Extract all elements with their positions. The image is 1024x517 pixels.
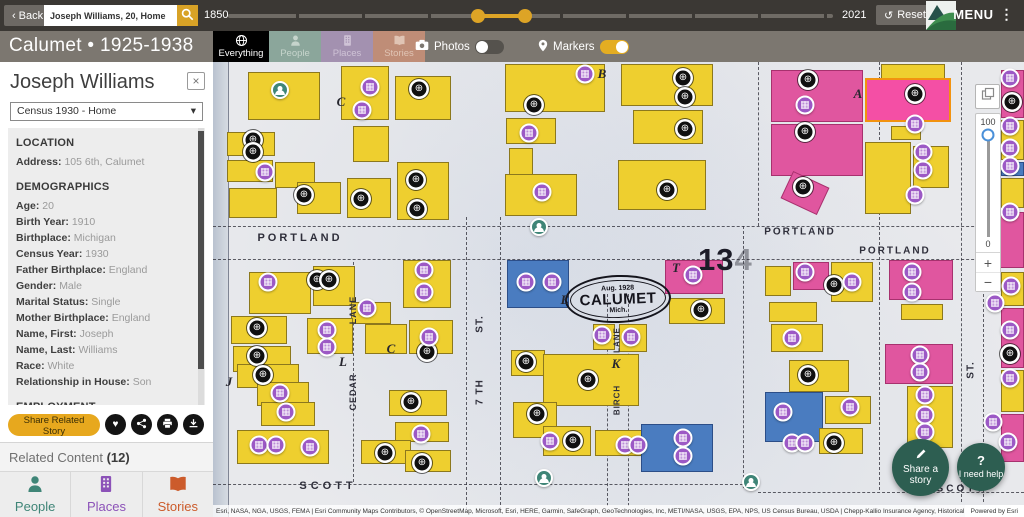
- map-marker-record[interactable]: ⊕: [401, 392, 421, 412]
- sidebar-scrollbar[interactable]: [198, 128, 204, 405]
- globe-marker-icon: ⊕: [300, 190, 308, 200]
- map-marker-place[interactable]: ▦: [361, 78, 380, 97]
- related-tab-label: Stories: [158, 499, 198, 514]
- tab-label: Everything: [219, 48, 264, 59]
- building-marker-icon: ▦: [416, 429, 425, 439]
- map-marker-record[interactable]: ⊕: [409, 79, 429, 99]
- globe-marker-icon: ⊕: [1006, 349, 1014, 359]
- year-slider-handle-right[interactable]: [518, 9, 532, 23]
- map-marker-record[interactable]: ⊕: [675, 87, 695, 107]
- street-line: [213, 484, 743, 485]
- field-value: Joseph: [80, 328, 114, 340]
- map-marker-place[interactable]: ▦: [999, 433, 1018, 452]
- page-title: Calumet • 1925-1938: [9, 35, 194, 57]
- building-marker-icon: ▦: [678, 433, 687, 443]
- map-marker-place[interactable]: ▦: [1001, 321, 1020, 340]
- map-building: [865, 142, 911, 214]
- map-marker-record[interactable]: ⊕: [407, 199, 427, 219]
- menu-button[interactable]: MENU ⋮: [953, 6, 1014, 23]
- globe-marker-icon: ⊕: [407, 397, 415, 407]
- basemap-button[interactable]: [975, 84, 1000, 109]
- building-marker-icon: ▦: [1005, 73, 1014, 83]
- globe-marker-icon: ⊕: [418, 458, 426, 468]
- related-tab-label: People: [15, 499, 55, 514]
- globe-marker-icon: ⊕: [569, 436, 577, 446]
- map-marker-record[interactable]: ⊕: [824, 275, 844, 295]
- field-value: 1930: [85, 248, 108, 260]
- globe-marker-icon: ⊕: [423, 347, 431, 357]
- app-logo[interactable]: [926, 1, 956, 30]
- map-marker-place[interactable]: ▦: [533, 183, 552, 202]
- photos-switch[interactable]: [475, 40, 504, 54]
- building-marker-icon: ▦: [1003, 437, 1012, 447]
- map-marker-record[interactable]: ⊕: [673, 68, 693, 88]
- heart-icon: ♥: [113, 419, 119, 430]
- field-row: Race: White: [16, 360, 191, 376]
- building-marker-icon: ▦: [419, 287, 428, 297]
- map-marker-place[interactable]: ▦: [1001, 203, 1020, 222]
- map-marker-person[interactable]: [742, 473, 760, 491]
- building-marker-icon: ▦: [322, 342, 331, 352]
- book-icon: [168, 474, 188, 497]
- map-marker-record[interactable]: ⊕: [691, 300, 711, 320]
- detail-sidebar: Joseph Williams × Census 1930 - Home ▾ L…: [0, 62, 213, 517]
- globe-marker-icon: ⊕: [584, 375, 592, 385]
- zoom-in-button[interactable]: +: [976, 253, 1000, 272]
- field-label: Gender:: [16, 280, 59, 292]
- field-row: Birth Year: 1910: [16, 216, 191, 232]
- map-marker-place[interactable]: ▦: [543, 273, 562, 292]
- field-row: Gender: Male: [16, 280, 191, 296]
- map-marker-place[interactable]: ▦: [906, 186, 925, 205]
- globe-marker-icon: ⊕: [381, 448, 389, 458]
- globe-marker-icon: ⊕: [804, 370, 812, 380]
- person-icon: [289, 34, 302, 47]
- building-marker-icon: ▦: [915, 350, 924, 360]
- map-marker-place[interactable]: ▦: [520, 124, 539, 143]
- globe-marker-icon: ⊕: [911, 89, 919, 99]
- map-marker-record[interactable]: ⊕: [793, 177, 813, 197]
- map-building: [901, 304, 943, 320]
- person-icon: [25, 474, 45, 497]
- share-a-story-button[interactable]: Share a story: [892, 439, 949, 496]
- street-label: SCOTT: [299, 480, 356, 492]
- search-input[interactable]: [44, 5, 177, 26]
- globe-marker-icon: ⊕: [801, 127, 809, 137]
- building-marker-icon: ▦: [580, 69, 589, 79]
- pencil-icon: [915, 448, 927, 464]
- opacity-slider[interactable]: [987, 133, 990, 237]
- building-marker-icon: ▦: [778, 407, 787, 417]
- map-marker-record[interactable]: ⊕: [375, 443, 395, 463]
- stamp-state: Mich.: [609, 306, 627, 314]
- map-marker-place[interactable]: ▦: [684, 266, 703, 285]
- building-marker-icon: ▦: [537, 187, 546, 197]
- photos-toggle[interactable]: Photos: [415, 39, 504, 54]
- map-marker-place[interactable]: ▦: [629, 436, 648, 455]
- building-marker-icon: ▦: [918, 147, 927, 157]
- field-value: Single: [91, 296, 120, 308]
- map-marker-person[interactable]: [535, 469, 553, 487]
- markers-toggle[interactable]: Markers: [538, 39, 629, 55]
- map-marker-place[interactable]: ▦: [984, 413, 1003, 432]
- globe-marker-icon: ⊕: [415, 84, 423, 94]
- globe-marker-icon: ⊕: [804, 75, 812, 85]
- top-bar: ‹ Back 1850 2021 ↺ Reset: [0, 0, 1024, 31]
- street-line: [961, 62, 962, 502]
- building-marker-icon: ▦: [1006, 281, 1015, 291]
- field-value: England: [112, 312, 151, 324]
- map-marker-record[interactable]: ⊕: [243, 142, 263, 162]
- globe-marker-icon: ⊕: [679, 73, 687, 83]
- map-marker-place[interactable]: ▦: [415, 261, 434, 280]
- field-row: Name, Last: Williams: [16, 344, 191, 360]
- map-marker-place[interactable]: ▦: [353, 101, 372, 120]
- map-marker-place[interactable]: ▦: [256, 163, 275, 182]
- map-canvas[interactable]: Aug. 1928 CALUMET Mich. 134 100 0 +: [213, 62, 1024, 517]
- action-bar: Share Related Story ♥: [0, 405, 213, 442]
- field-row: Relationship in House: Son: [16, 376, 191, 392]
- globe-marker-icon: ⊕: [681, 92, 689, 102]
- map-marker-place[interactable]: ▦: [903, 283, 922, 302]
- building-marker-icon: ▦: [847, 277, 856, 287]
- map-marker-place[interactable]: ▦: [1002, 277, 1021, 296]
- close-icon: ×: [192, 74, 199, 88]
- calumet-stamp: Aug. 1928 CALUMET Mich.: [564, 273, 672, 325]
- street-label: CEDAR: [348, 373, 358, 410]
- i-need-help-button[interactable]: ? I need help: [957, 443, 1005, 491]
- globe-marker-icon: ⊕: [530, 100, 538, 110]
- close-button[interactable]: ×: [187, 72, 205, 90]
- building-marker-icon: ▦: [322, 325, 331, 335]
- field-label: Race:: [16, 360, 48, 372]
- map-marker-record[interactable]: ⊕: [294, 185, 314, 205]
- related-tab-places[interactable]: Places: [70, 472, 141, 517]
- building-marker-icon: ▦: [545, 436, 554, 446]
- building-marker-icon: ▦: [419, 265, 428, 275]
- field-row: Age: 20: [16, 200, 191, 216]
- print-button[interactable]: [157, 414, 178, 435]
- camera-icon: [415, 39, 429, 54]
- tab-people[interactable]: People: [269, 31, 321, 62]
- building-marker-icon: ▦: [597, 330, 606, 340]
- map-marker-record[interactable]: ⊕: [795, 122, 815, 142]
- street-label: LANE: [348, 296, 358, 325]
- map-marker-record[interactable]: ⊕: [524, 95, 544, 115]
- field-value: 20: [42, 200, 54, 212]
- map-marker-place[interactable]: ▦: [914, 143, 933, 162]
- related-content-tabs: People Places Stories: [0, 471, 213, 517]
- reset-label: Reset: [897, 9, 926, 21]
- map-marker-place[interactable]: ▦: [1001, 69, 1020, 88]
- book-icon: [393, 34, 406, 47]
- map-marker-place[interactable]: ▦: [277, 403, 296, 422]
- tab-everything[interactable]: Everything: [213, 31, 269, 62]
- map-marker-place[interactable]: ▦: [415, 283, 434, 302]
- map-marker-place[interactable]: ▦: [774, 403, 793, 422]
- globe-icon: [235, 34, 248, 47]
- map-building: [771, 124, 863, 176]
- globe-marker-icon: ⊕: [830, 438, 838, 448]
- download-icon: [188, 418, 199, 432]
- field-label: Age:: [16, 200, 42, 212]
- building-marker-icon: ▦: [907, 267, 916, 277]
- map-marker-record[interactable]: ⊕: [1002, 92, 1022, 112]
- map-pin-icon: [538, 39, 548, 55]
- field-value: 1910: [72, 216, 95, 228]
- map-marker-record[interactable]: ⊕: [527, 404, 547, 424]
- street-label: 7 TH: [475, 379, 486, 405]
- building-marker-icon: ▦: [263, 277, 272, 287]
- timeline-year-end: 2021: [842, 9, 866, 21]
- block-letter: J: [226, 374, 233, 390]
- field-row: Mother Birthplace: England: [16, 312, 191, 328]
- map-marker-place[interactable]: ▦: [911, 363, 930, 382]
- building-marker-icon: ▦: [254, 440, 263, 450]
- field-row: Census Year: 1930: [16, 248, 191, 264]
- related-tab-people[interactable]: People: [0, 472, 70, 517]
- map-marker-record[interactable]: ⊕: [516, 352, 536, 372]
- building-marker-icon: ▦: [990, 298, 999, 308]
- building-marker-icon: ▦: [845, 402, 854, 412]
- map-marker-place[interactable]: ▦: [903, 263, 922, 282]
- building-marker-icon: ▦: [1005, 121, 1014, 131]
- search-icon: [181, 8, 194, 24]
- map-marker-place[interactable]: ▦: [259, 273, 278, 292]
- tab-label: Stories: [384, 48, 414, 59]
- field-label: Relationship in House:: [16, 376, 133, 388]
- map-marker-place[interactable]: ▦: [1001, 157, 1020, 176]
- map-marker-place[interactable]: ▦: [412, 425, 431, 444]
- map-marker-place[interactable]: ▦: [1001, 139, 1020, 158]
- street-label: LANE: [613, 327, 622, 353]
- favorite-button[interactable]: ♥: [105, 414, 126, 435]
- field-value: White: [48, 360, 75, 372]
- street-line: [758, 62, 759, 226]
- year-slider[interactable]: [228, 14, 833, 18]
- field-label: Birthplace:: [16, 232, 74, 244]
- building-marker-icon: ▦: [688, 270, 697, 280]
- field-label: Birth Year:: [16, 216, 72, 228]
- map-marker-place[interactable]: ▦: [420, 328, 439, 347]
- building-marker-icon: ▦: [260, 167, 269, 177]
- map-marker-record[interactable]: ⊕: [657, 180, 677, 200]
- globe-marker-icon: ⊕: [357, 194, 365, 204]
- building-marker-icon: ▦: [521, 277, 530, 287]
- map-marker-record[interactable]: ⊕: [905, 84, 925, 104]
- map-marker-record[interactable]: ⊕: [412, 453, 432, 473]
- map-marker-record[interactable]: ⊕: [319, 270, 339, 290]
- year-slider-handle-left[interactable]: [471, 9, 485, 23]
- building-icon: [96, 474, 116, 497]
- street-line: [466, 217, 467, 510]
- powered-by-esri[interactable]: Powered by Esri: [965, 505, 1024, 517]
- building-marker-icon: ▦: [800, 100, 809, 110]
- map-marker-record[interactable]: ⊕: [1000, 344, 1020, 364]
- building-marker-icon: ▦: [918, 165, 927, 175]
- field-label: Name, First:: [16, 328, 80, 340]
- map-marker-place[interactable]: ▦: [783, 329, 802, 348]
- map-marker-record[interactable]: ⊕: [247, 346, 267, 366]
- map-marker-place[interactable]: ▦: [1001, 117, 1020, 136]
- print-icon: [162, 418, 173, 432]
- stamp-name: CALUMET: [579, 290, 656, 308]
- field-value: Male: [59, 280, 82, 292]
- back-chevron-icon: ‹: [12, 10, 16, 22]
- field-label: Marital Status:: [16, 296, 91, 308]
- fab-label: Share a story: [892, 464, 949, 487]
- map-marker-place[interactable]: ▦: [541, 432, 560, 451]
- field-row: Birthplace: Michigan: [16, 232, 191, 248]
- building-marker-icon: ▦: [678, 451, 687, 461]
- scrollbar-thumb[interactable]: [198, 131, 204, 369]
- markers-switch[interactable]: [600, 40, 629, 54]
- field-value: Michigan: [74, 232, 116, 244]
- globe-marker-icon: ⊕: [253, 351, 261, 361]
- globe-marker-icon: ⊕: [413, 204, 421, 214]
- map-marker-place[interactable]: ▦: [916, 386, 935, 405]
- block-letter: C: [337, 94, 346, 110]
- map-marker-place[interactable]: ▦: [593, 326, 612, 345]
- back-label: Back: [19, 10, 43, 22]
- map-building: [353, 126, 389, 162]
- building-marker-icon: ▦: [1005, 373, 1014, 383]
- question-icon: ?: [977, 454, 985, 469]
- related-tab-stories[interactable]: Stories: [142, 472, 213, 517]
- opacity-slider-handle[interactable]: [982, 128, 995, 141]
- building-marker-icon: ▦: [275, 388, 284, 398]
- building-marker-icon: ▦: [988, 417, 997, 427]
- share-button[interactable]: [131, 414, 152, 435]
- building-marker-icon: ▦: [424, 332, 433, 342]
- tab-places[interactable]: Places: [321, 31, 373, 62]
- map-sheet-edge: [213, 62, 229, 517]
- sub-header: Calumet • 1925-1938 Everything People Pl…: [0, 31, 1024, 62]
- layers-icon: [981, 87, 995, 106]
- map-marker-place[interactable]: ▦: [622, 328, 641, 347]
- map-marker-place[interactable]: ▦: [906, 115, 925, 134]
- map-marker-place[interactable]: ▦: [517, 273, 536, 292]
- map-marker-place[interactable]: ▦: [1001, 369, 1020, 388]
- map-marker-record[interactable]: ⊕: [563, 431, 583, 451]
- map-marker-record[interactable]: ⊕: [253, 365, 273, 385]
- field-label: Name, Last:: [16, 344, 78, 356]
- map-marker-place[interactable]: ▦: [271, 384, 290, 403]
- map-marker-record[interactable]: ⊕: [578, 370, 598, 390]
- field-label: Address:: [16, 156, 64, 168]
- map-marker-record[interactable]: ⊕: [247, 318, 267, 338]
- building-marker-icon: ▦: [915, 367, 924, 377]
- building-marker-icon: ▦: [907, 287, 916, 297]
- block-letter: C: [387, 341, 396, 357]
- map-marker-record[interactable]: ⊕: [824, 433, 844, 453]
- opacity-max-label: 100: [980, 117, 995, 127]
- street-label: PORTLAND: [859, 246, 931, 257]
- building-marker-icon: ▦: [357, 105, 366, 115]
- opacity-zoom-panel: 100 0 + −: [975, 113, 1001, 292]
- share-icon: [136, 418, 147, 432]
- map-marker-place[interactable]: ▦: [843, 273, 862, 292]
- person-name: Joseph Williams: [10, 71, 203, 94]
- tab-label: Places: [333, 48, 362, 59]
- search-button[interactable]: [177, 5, 198, 26]
- field-value: England: [109, 264, 148, 276]
- app-window: ‹ Back 1850 2021 ↺ Reset: [0, 0, 1024, 517]
- field-label: Mother Birthplace:: [16, 312, 112, 324]
- field-label: Census Year:: [16, 248, 85, 260]
- map-marker-place[interactable]: ▦: [986, 294, 1005, 313]
- street-label: PORTLAND: [257, 232, 342, 244]
- map-marker-place[interactable]: ▦: [576, 65, 595, 84]
- map-marker-person[interactable]: [530, 218, 548, 236]
- block-letter: K: [612, 356, 621, 372]
- building-marker-icon: ▦: [365, 82, 374, 92]
- field-value: Son: [133, 376, 152, 388]
- map-marker-record[interactable]: ⊕: [675, 119, 695, 139]
- map-marker-place[interactable]: ▦: [301, 438, 320, 457]
- share-related-story-button[interactable]: Share Related Story: [8, 414, 100, 436]
- download-button[interactable]: [183, 414, 204, 435]
- map-marker-place[interactable]: ▦: [841, 398, 860, 417]
- map-marker-person[interactable]: [271, 81, 289, 99]
- zoom-out-button[interactable]: −: [976, 272, 1000, 291]
- block-letter: L: [339, 354, 347, 370]
- street-line: [213, 226, 1024, 227]
- globe-marker-icon: ⊕: [681, 124, 689, 134]
- toggle-label: Photos: [434, 41, 470, 53]
- block-letter: E: [561, 292, 570, 308]
- map-marker-record[interactable]: ⊕: [351, 189, 371, 209]
- map-marker-place[interactable]: ▦: [796, 96, 815, 115]
- building-marker-icon: ▦: [800, 267, 809, 277]
- related-content-count: (12): [107, 450, 130, 465]
- details-panel: LOCATIONAddress: 105 6th, CalumetDEMOGRA…: [8, 128, 205, 405]
- map-marker-place[interactable]: ▦: [318, 338, 337, 357]
- map-marker-record[interactable]: ⊕: [406, 170, 426, 190]
- building-marker-icon: ▦: [305, 442, 314, 452]
- building-marker-icon: ▦: [920, 390, 929, 400]
- map-marker-place[interactable]: ▦: [796, 263, 815, 282]
- map-marker-place[interactable]: ▦: [267, 436, 286, 455]
- map-marker-record[interactable]: ⊕: [798, 365, 818, 385]
- section-header: DEMOGRAPHICS: [16, 172, 191, 200]
- map-marker-place[interactable]: ▦: [674, 447, 693, 466]
- map-marker-place[interactable]: ▦: [674, 429, 693, 448]
- map-marker-place[interactable]: ▦: [914, 161, 933, 180]
- globe-marker-icon: ⊕: [663, 185, 671, 195]
- timeline-year-start: 1850: [204, 9, 228, 21]
- globe-marker-icon: ⊕: [533, 409, 541, 419]
- map-building: [769, 302, 817, 322]
- block-letter: T: [672, 260, 680, 276]
- map-marker-record[interactable]: ⊕: [798, 70, 818, 90]
- field-value: 105 6th, Calumet: [64, 156, 144, 168]
- map-controls: 100 0 + −: [975, 84, 1002, 292]
- building-marker-icon: ▦: [920, 410, 929, 420]
- map-marker-place[interactable]: ▦: [796, 434, 815, 453]
- building-marker-icon: ▦: [626, 332, 635, 342]
- plate-number: 134: [698, 244, 753, 275]
- record-select[interactable]: Census 1930 - Home ▾: [10, 102, 203, 121]
- building-marker-icon: ▦: [1005, 207, 1014, 217]
- field-row: Address: 105 6th, Calumet: [16, 156, 191, 172]
- map-building: [229, 188, 277, 218]
- map-marker-place[interactable]: ▦: [358, 299, 377, 318]
- tab-label: People: [280, 48, 310, 59]
- building-marker-icon: ▦: [1005, 143, 1014, 153]
- building-marker-icon: ▦: [800, 438, 809, 448]
- street-label: PORTLAND: [764, 227, 836, 238]
